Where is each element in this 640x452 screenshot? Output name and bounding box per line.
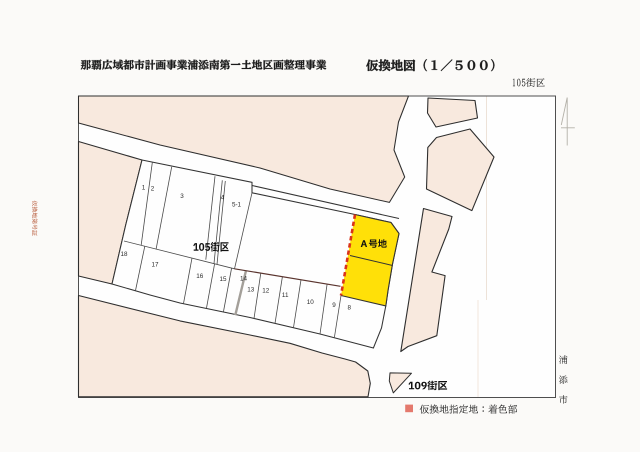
svg-text:10: 10 <box>307 299 315 306</box>
svg-text:12: 12 <box>262 288 270 295</box>
svg-text:14: 14 <box>240 276 248 283</box>
svg-text:3: 3 <box>180 193 184 200</box>
svg-text:13: 13 <box>247 286 255 293</box>
svg-text:11: 11 <box>282 292 289 299</box>
svg-text:8: 8 <box>348 305 352 312</box>
svg-text:9: 9 <box>332 302 336 309</box>
svg-text:1: 1 <box>142 185 146 192</box>
svg-text:4: 4 <box>221 195 225 202</box>
svg-text:15: 15 <box>219 276 227 283</box>
svg-text:17: 17 <box>151 262 159 269</box>
svg-text:18: 18 <box>120 251 128 258</box>
svg-text:2: 2 <box>151 186 155 193</box>
svg-text:5-1: 5-1 <box>232 202 242 209</box>
svg-text:16: 16 <box>196 273 204 280</box>
